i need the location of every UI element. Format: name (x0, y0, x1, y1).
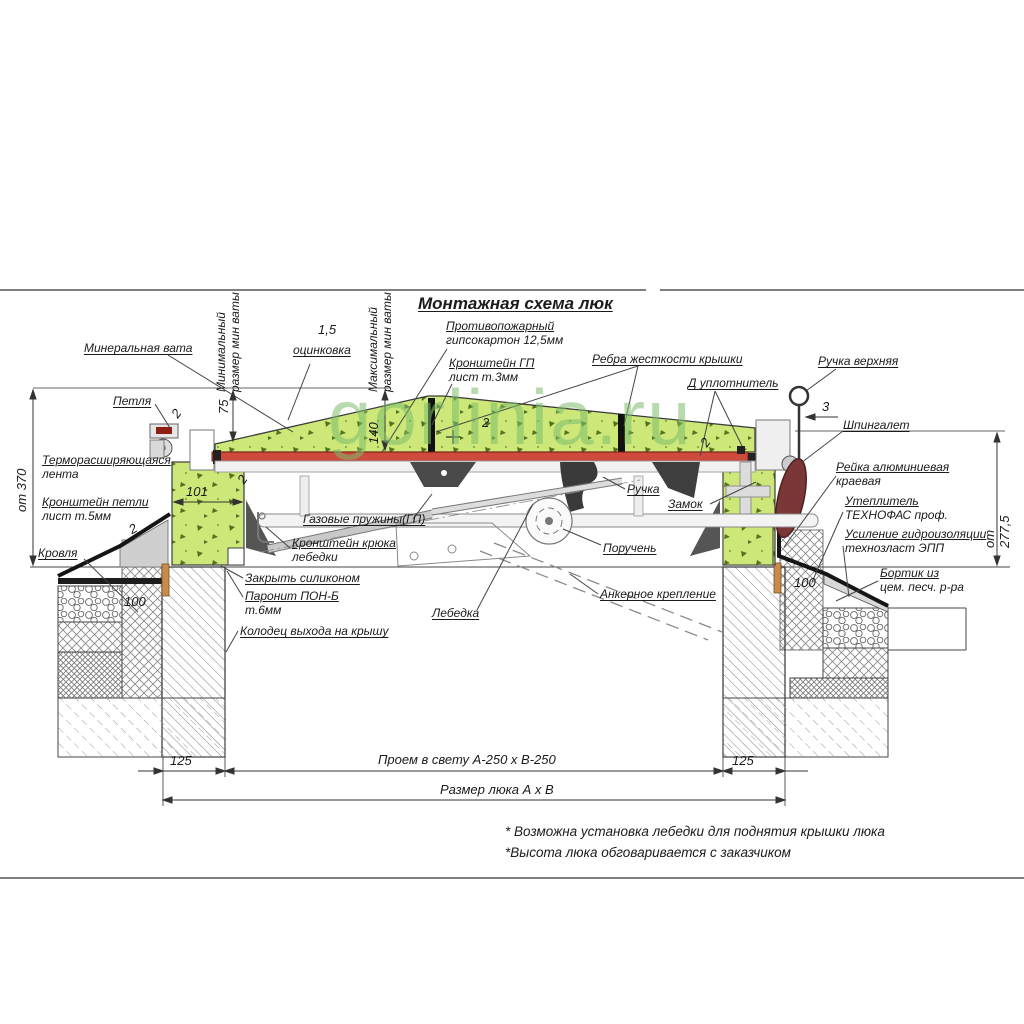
callout-min-wool-size: Минимальный размер мин ваты (214, 292, 242, 392)
callout-lock: Замок (668, 497, 703, 511)
drawing-sheet: gorlinia.ru Монтажная схема люк Минераль… (0, 0, 1024, 1024)
dim-100-right: 100 (794, 575, 816, 590)
callout-handrail: Поручень (603, 541, 656, 555)
callout-waterproofing: Усиление гидроизоляции технозласт ЭПП (845, 527, 986, 555)
dim-100-left: 100 (124, 594, 146, 609)
dim-zinc-thickness: 1,5 (318, 322, 336, 337)
callout-roof-well: Колодец выхода на крышу (240, 624, 388, 638)
dim-75: 75 (216, 400, 231, 414)
callout-cement-curb: Бортик из цем. песч. р-ра (880, 566, 964, 594)
callout-fireproof-gypsum: Противопожарный гипсокартон 12,5мм (446, 319, 563, 347)
dim-140: 140 (366, 422, 381, 444)
dim-101: 101 (186, 484, 208, 499)
callout-roof: Кровля (38, 546, 77, 560)
dim-3: 3 (822, 399, 829, 414)
dim-125-right: 125 (732, 753, 754, 768)
drawing-title: Монтажная схема люк (418, 294, 613, 314)
right-dowel (774, 563, 781, 593)
callout-top-handle: Ручка верхняя (818, 354, 898, 368)
dim-opening: Проем в свету А-250 х В-250 (378, 752, 556, 767)
callout-silicone: Закрыть силиконом (245, 571, 360, 585)
callout-handle: Ручка (627, 482, 660, 496)
callout-paronite: Паронит ПОН-Б т.6мм (245, 589, 339, 617)
dim-2-mid: 2 (482, 415, 489, 430)
right-slab-band (723, 698, 888, 757)
note-winch: * Возможна установка лебедки для подняти… (505, 824, 885, 840)
top-handle-ring (790, 387, 808, 405)
callout-gp-bracket: Кронштейн ГП лист т.3мм (449, 356, 535, 384)
callout-d-seal: Д уплотнитель (688, 376, 778, 390)
gas-spring-rod (432, 481, 622, 512)
callout-latch: Шпингалет (843, 418, 910, 432)
callout-winch-hook-bracket: Кронштейн крюка лебедки (292, 536, 396, 564)
callout-alu-rail: Рейка алюминиевая краевая (836, 460, 949, 488)
callout-mineral-wool: Минеральная вата (84, 341, 192, 355)
callout-cover-ribs: Ребра жесткости крышки (592, 352, 743, 366)
note-height: *Высота люка обговаривается с заказчиком (505, 845, 791, 861)
callout-zinc: оцинковка (293, 343, 351, 357)
left-slab-band (58, 698, 225, 757)
dim-125-left: 125 (170, 753, 192, 768)
callout-anchor: Анкерное крепление (600, 587, 716, 601)
callout-max-wool-size: Максимальный размер мин ваты (366, 292, 394, 392)
callout-insulation: Утеплитель ТЕХНОФАС проф. (845, 494, 948, 522)
dim-hatch-size: Размер люка А х В (440, 782, 554, 797)
callout-thermo-tape: Терморасширяющаяся лента (42, 453, 171, 481)
callout-gas-springs: Газовые пружины(ГП) (303, 512, 425, 526)
dim-left-height: от 370 (14, 469, 29, 512)
callout-hinge-bracket: Кронштейн петли лист т.5мм (42, 495, 149, 523)
callout-hinge: Петля (113, 394, 151, 408)
left-dowel (162, 564, 169, 596)
dim-right-height: от 277,5 (982, 506, 1013, 548)
callout-winch: Лебедка (432, 606, 479, 620)
